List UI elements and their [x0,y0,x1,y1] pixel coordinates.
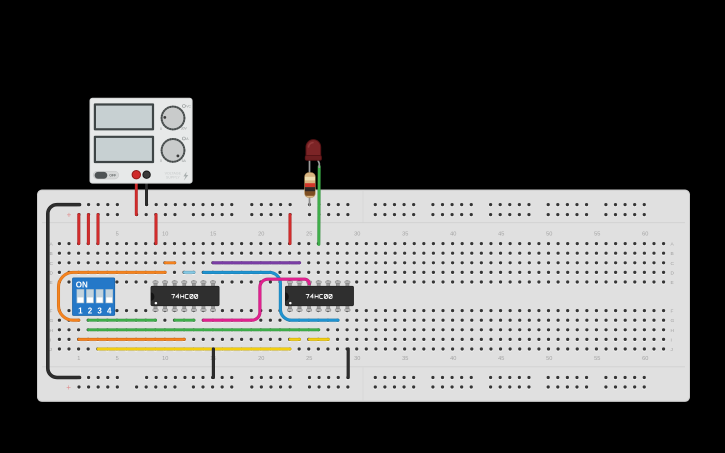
svg-text:H: H [50,328,54,334]
svg-text:0: 0 [160,159,162,163]
svg-text:20: 20 [258,231,264,237]
svg-text:50: 50 [546,231,552,237]
svg-text:35: 35 [402,231,408,237]
svg-text:+: + [67,210,72,219]
svg-text:D: D [671,270,675,276]
svg-text:10: 10 [162,231,168,237]
svg-text:50: 50 [546,356,552,362]
svg-text:E: E [671,280,674,286]
svg-text:B: B [671,251,674,257]
svg-text:OFF: OFF [109,174,117,178]
svg-text:1: 1 [78,307,83,316]
svg-text:5: 5 [116,356,119,362]
svg-text:H: H [671,328,675,334]
svg-text:SUPPLY: SUPPLY [166,175,181,179]
svg-text:C: C [671,261,675,267]
svg-text:5: 5 [116,231,119,237]
svg-text:1: 1 [77,356,80,362]
svg-text:D: D [50,270,54,276]
svg-text:45: 45 [498,231,504,237]
svg-text:15: 15 [210,231,216,237]
svg-text:20: 20 [258,356,264,362]
svg-text:30: 30 [354,356,360,362]
svg-text:30: 30 [354,231,360,237]
svg-text:25: 25 [306,356,312,362]
svg-text:4: 4 [107,307,112,316]
svg-text:0: 0 [160,127,162,131]
svg-text:2: 2 [88,307,93,316]
svg-text:60: 60 [642,231,648,237]
svg-text:VC: VC [186,105,191,109]
svg-text:25: 25 [306,231,312,237]
svg-text:E: E [50,280,53,286]
svg-text:F: F [671,309,674,315]
svg-text:60: 60 [642,356,648,362]
svg-text:55: 55 [594,356,600,362]
svg-text:F: F [50,309,53,315]
svg-text:G: G [50,318,54,324]
svg-text:B: B [50,251,53,257]
svg-text:40: 40 [450,231,456,237]
svg-text:3: 3 [97,307,102,316]
svg-text:40: 40 [450,356,456,362]
svg-text:55: 55 [594,231,600,237]
svg-text:ON: ON [76,281,88,290]
svg-text:45: 45 [498,356,504,362]
svg-text:G: G [671,318,675,324]
svg-text:+: + [66,383,71,392]
svg-text:I: I [671,337,672,343]
svg-text:30V: 30V [181,127,188,131]
svg-text:10: 10 [162,356,168,362]
svg-text:5A: 5A [182,159,187,163]
svg-text:35: 35 [402,356,408,362]
svg-text:I: I [50,337,51,343]
svg-text:C: C [50,261,54,267]
